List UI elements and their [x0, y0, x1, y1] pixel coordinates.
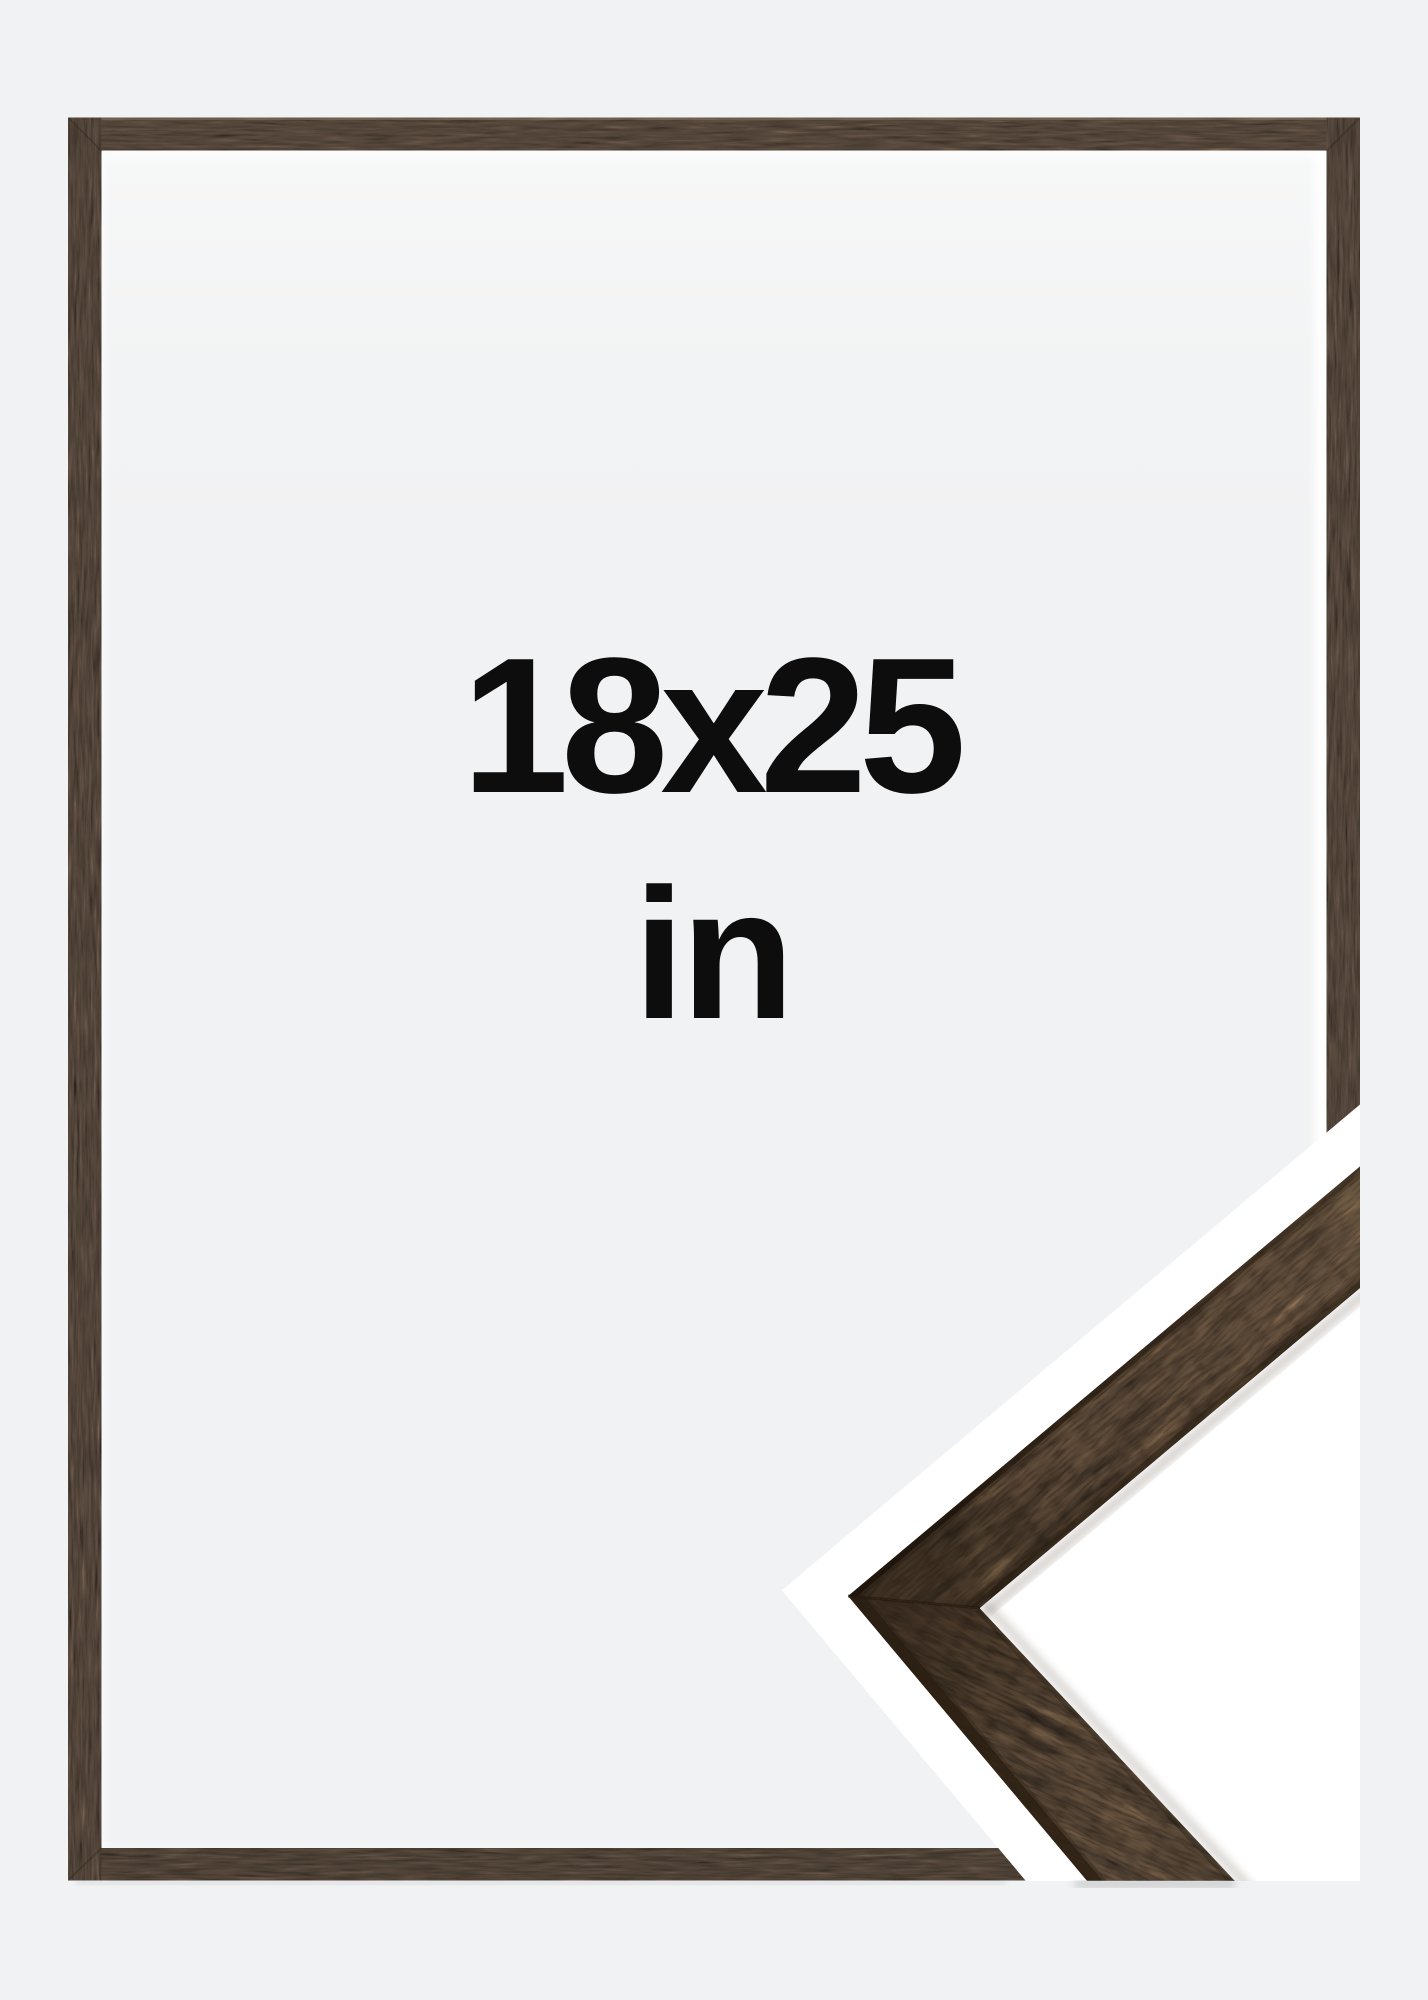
svg-text:in: in [633, 851, 790, 1058]
svg-text:18x25: 18x25 [462, 617, 961, 833]
